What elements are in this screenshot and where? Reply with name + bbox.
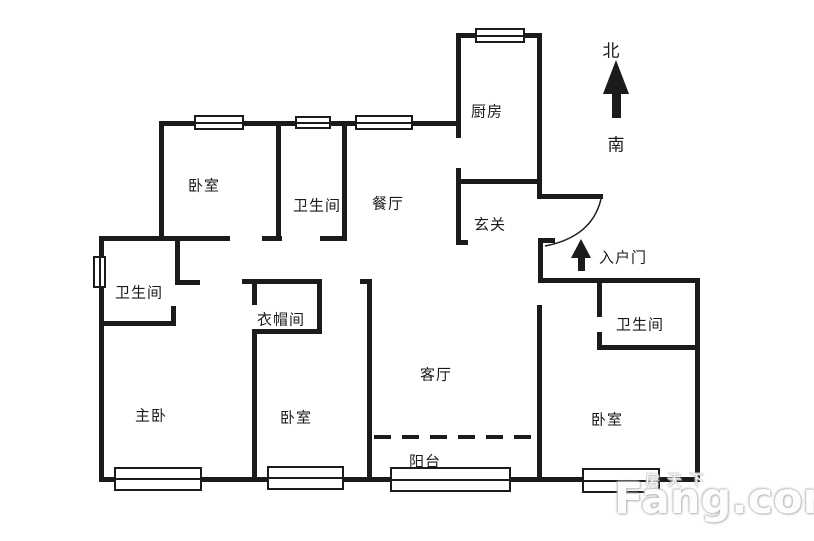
wall: [367, 279, 372, 482]
wall: [175, 238, 180, 285]
room-label-living-room: 客厅: [420, 364, 452, 385]
room-label-kitchen: 厨房: [471, 101, 503, 122]
entry-direction-arrow-icon: [571, 239, 591, 271]
wall: [175, 280, 200, 285]
compass-north-arrow-icon: [603, 60, 629, 118]
window: [295, 116, 331, 129]
wall: [99, 321, 176, 326]
entry-door-label: 入户门: [599, 247, 647, 268]
wall: [252, 329, 322, 334]
entry-door-leaf: [540, 194, 603, 199]
room-label-foyer: 玄关: [474, 214, 506, 235]
wall: [317, 279, 322, 334]
wall: [252, 279, 257, 305]
wall: [537, 305, 542, 482]
window: [475, 28, 525, 43]
window: [114, 467, 202, 491]
floor-plan: 北 南 厨房 卧室 卫生间 餐厅 玄关 入户门 卫生间 衣帽间 卫生间 客厅 主…: [0, 0, 814, 541]
room-label-dining: 餐厅: [372, 193, 404, 214]
compass-south-label: 南: [608, 131, 625, 156]
window: [194, 115, 244, 130]
wall: [159, 121, 164, 241]
wall: [597, 281, 602, 317]
room-label-bedroom-top: 卧室: [188, 175, 220, 196]
wall: [597, 345, 700, 350]
room-label-balcony: 阳台: [409, 451, 441, 472]
watermark-site-name-en: Fang.com: [614, 474, 814, 524]
wall: [458, 179, 542, 184]
wall: [99, 236, 230, 241]
window: [267, 466, 344, 490]
room-label-cloakroom: 衣帽间: [257, 309, 305, 330]
room-label-bedroom-middle: 卧室: [280, 407, 312, 428]
room-label-bathroom-left: 卫生间: [115, 282, 163, 303]
wall: [538, 278, 700, 283]
wall: [456, 240, 468, 245]
wall: [537, 33, 542, 199]
window: [93, 256, 106, 288]
room-label-bedroom-right: 卧室: [591, 409, 623, 430]
wall: [252, 334, 257, 482]
wall: [695, 278, 700, 482]
wall: [456, 33, 461, 138]
wall: [342, 121, 347, 241]
wall: [276, 121, 281, 241]
room-label-bathroom-right: 卫生间: [616, 314, 664, 335]
room-label-bathroom-top: 卫生间: [293, 195, 341, 216]
compass-north-label: 北: [603, 37, 620, 62]
room-label-master-bedroom: 主卧: [135, 405, 167, 426]
wall: [538, 238, 543, 282]
window: [355, 115, 413, 130]
